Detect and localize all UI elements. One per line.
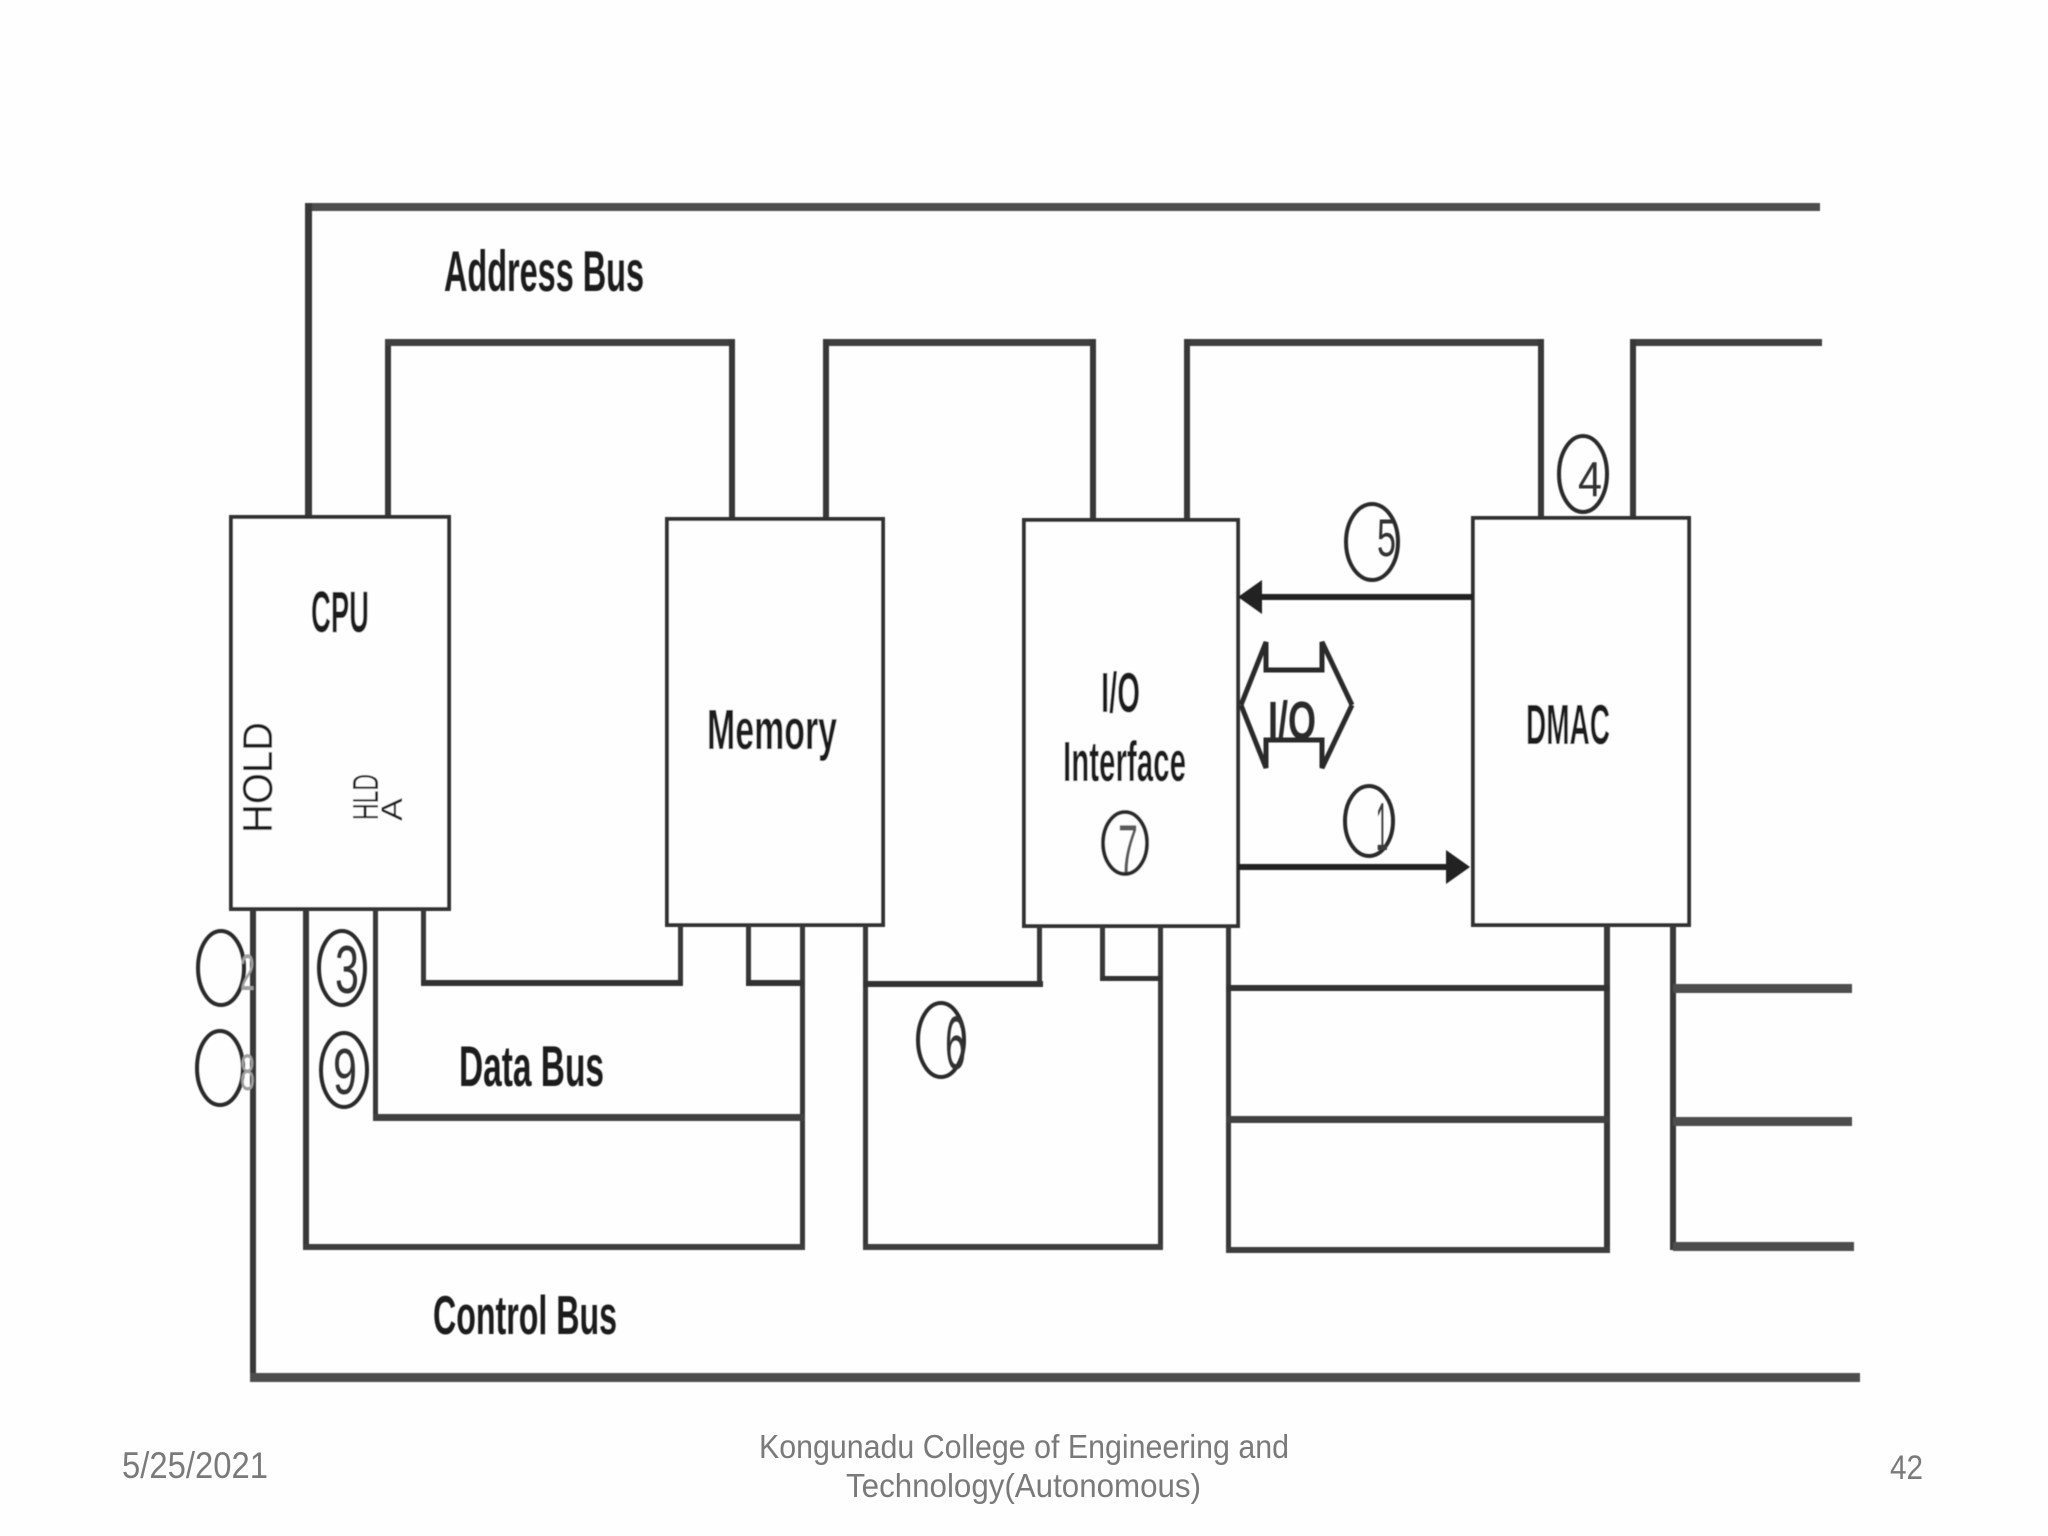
svg-text:5/25/2021: 5/25/2021 [122, 1445, 268, 1486]
svg-text:9: 9 [333, 1035, 357, 1108]
svg-text:1: 1 [1376, 789, 1388, 865]
svg-text:Interface: Interface [1063, 732, 1186, 794]
svg-text:42: 42 [1890, 1449, 1923, 1487]
svg-text:DMAC: DMAC [1526, 695, 1610, 757]
svg-text:HOLD: HOLD [234, 722, 281, 833]
svg-text:Data Bus: Data Bus [459, 1034, 604, 1099]
svg-text:CPU: CPU [311, 578, 369, 644]
svg-text:5: 5 [1377, 510, 1396, 568]
svg-text:I/O: I/O [1268, 691, 1316, 751]
svg-text:Control Bus: Control Bus [433, 1286, 617, 1346]
svg-text:Technology(Autonomous): Technology(Autonomous) [846, 1467, 1201, 1504]
svg-text:2: 2 [240, 944, 255, 1001]
svg-text:8: 8 [240, 1044, 255, 1101]
svg-text:4: 4 [1578, 452, 1602, 507]
svg-text:I/O: I/O [1101, 663, 1140, 725]
svg-text:3: 3 [335, 932, 359, 1008]
svg-text:Memory: Memory [707, 700, 837, 762]
svg-text:Kongunadu College of Engineeri: Kongunadu College of Engineering and [759, 1428, 1289, 1465]
svg-text:7: 7 [1118, 811, 1138, 887]
svg-text:Address Bus: Address Bus [444, 239, 644, 304]
svg-text:A: A [376, 798, 409, 821]
svg-text:6: 6 [945, 1002, 966, 1086]
